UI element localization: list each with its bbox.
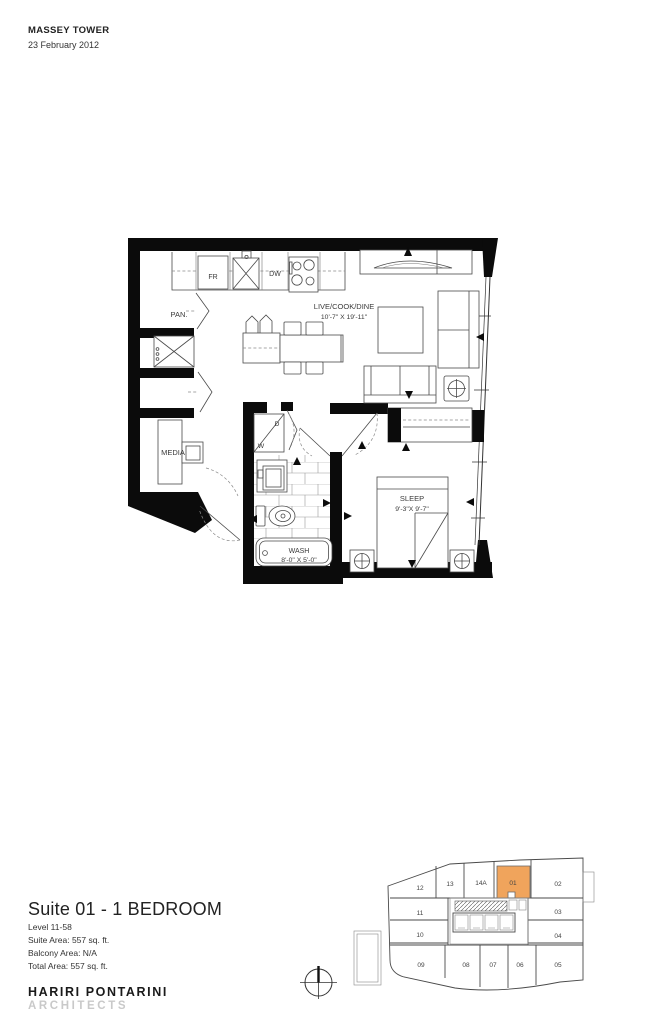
north-arrow-icon (300, 966, 337, 999)
sofa-bottom (364, 366, 436, 403)
pantry-label: PAN. (171, 310, 188, 319)
keyplan-unit-13: 13 (446, 881, 454, 888)
fridge (198, 256, 228, 289)
suite-title: Suite 01 - 1 BEDROOM (28, 899, 222, 920)
living-dims: 10'-7" X 19'-11" (321, 314, 368, 321)
wash-dims: 8'-0" X 5'-0" (281, 557, 317, 564)
wall-left (128, 238, 140, 506)
keyplan-unit-11: 11 (417, 910, 424, 917)
bath-door (299, 428, 330, 456)
keyplan-outline (388, 858, 583, 990)
keyplan-unit-04: 04 (554, 933, 562, 940)
media-label: MEDIA (161, 448, 185, 457)
stove (289, 257, 318, 292)
island-dining (243, 315, 343, 374)
media-room: MEDIA (158, 420, 238, 496)
keyplan-unit-07: 07 (489, 962, 497, 969)
bedroom-door (342, 413, 377, 456)
keyplan-unit-05: 05 (554, 962, 562, 969)
keyplan-unit-14A: 14A (475, 880, 487, 887)
tv-credenza (360, 250, 472, 274)
suite-floor-plan: FR DW PAN. (128, 238, 498, 584)
kitchen: FR DW (172, 251, 345, 292)
keyplan-unit-03: 03 (554, 909, 562, 916)
total-area: Total Area: 557 sq. ft. (28, 960, 222, 972)
sleep-label: SLEEP (400, 494, 424, 503)
suite-level: Level 11-58 (28, 921, 222, 933)
linen-closet (154, 336, 194, 367)
dishwasher-label: DW (269, 271, 281, 278)
toilet (256, 506, 295, 526)
keyplan-unit-12: 12 (416, 885, 424, 892)
wall-media-top (140, 408, 194, 418)
keyplan-unit-08: 08 (462, 962, 470, 969)
suite-area: Suite Area: 557 sq. ft. (28, 934, 222, 946)
suite-info: Suite 01 - 1 BEDROOM Level 11-58 Suite A… (28, 899, 222, 1012)
nightstand-left (350, 550, 374, 572)
keyplan-right-notch (583, 872, 594, 902)
wall-stub-pantry-bottom (140, 368, 194, 378)
coffee-table (378, 307, 423, 353)
side-table-lamp (444, 376, 469, 401)
bed (377, 477, 448, 568)
keyplan-balcony (354, 931, 381, 985)
keyplan-unit-02: 02 (554, 881, 562, 888)
wall-bath-bottom (243, 566, 343, 584)
wash-label: WASH (289, 548, 310, 555)
dryer-label: D (275, 421, 280, 428)
bedroom-closet (388, 408, 472, 442)
wall-corner-ne (482, 238, 498, 277)
balcony-area: Balcony Area: N/A (28, 947, 222, 959)
wall-bedroom-top (330, 403, 388, 414)
pantry: PAN. (154, 293, 212, 412)
nightstand-right (450, 550, 474, 572)
wall-bottom-left (128, 492, 212, 533)
living-room: LIVE/COOK/DINE 10'-7" X 19'-11" (314, 247, 484, 403)
washer-dryer: D W (254, 410, 297, 452)
sleep-dims: 9'-3"X 9'-7" (395, 506, 429, 513)
bedroom: SLEEP 9'-3"X 9'-7" (342, 408, 474, 572)
keyplan-core (450, 898, 528, 944)
living-label: LIVE/COOK/DINE (314, 302, 374, 311)
dining-table (280, 335, 343, 362)
wall-top (128, 238, 490, 251)
fridge-label: FR (208, 274, 217, 281)
keyplan-unit-06: 06 (516, 962, 524, 969)
firm-name: HARIRI PONTARINI (28, 985, 222, 999)
vanity-sink (257, 460, 287, 492)
keyplan-unit-10: 10 (416, 932, 424, 939)
floorplan-page: MASSEY TOWER 23 February 2012 (0, 0, 663, 1024)
washer-label: W (258, 443, 265, 450)
wall-bath-left (243, 402, 254, 584)
architectural-drawing: FR DW PAN. (0, 0, 663, 1024)
keyplan-unit-09: 09 (417, 962, 425, 969)
firm-subtitle: ARCHITECTS (28, 1000, 222, 1012)
wall-wd-top-right (281, 402, 293, 411)
sofa-right (438, 291, 479, 368)
kitchen-sink (233, 251, 259, 289)
wall-wd-top (243, 402, 267, 413)
keyplan-unit-01: 01 (509, 880, 517, 887)
keyplan: 12 13 14A 01 02 11 03 10 04 09 08 07 06 … (354, 858, 594, 990)
